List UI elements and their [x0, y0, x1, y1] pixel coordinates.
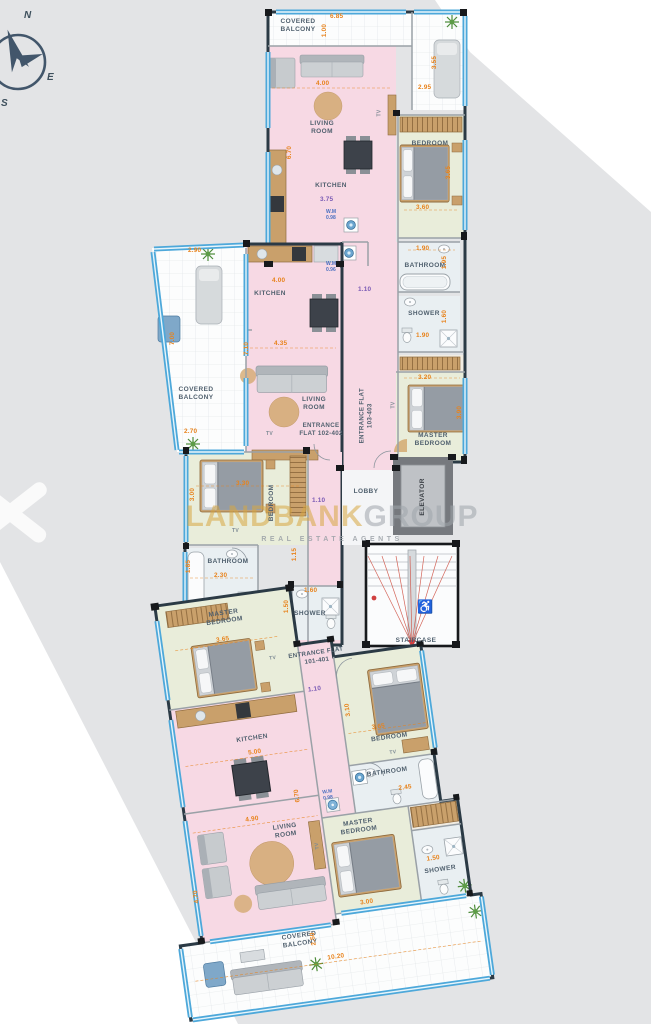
- floorplan-page: N E S LANDBANKGROUP REAL ESTATE AGENTS C…: [0, 0, 651, 1024]
- floorplan-drawing: [0, 0, 651, 1024]
